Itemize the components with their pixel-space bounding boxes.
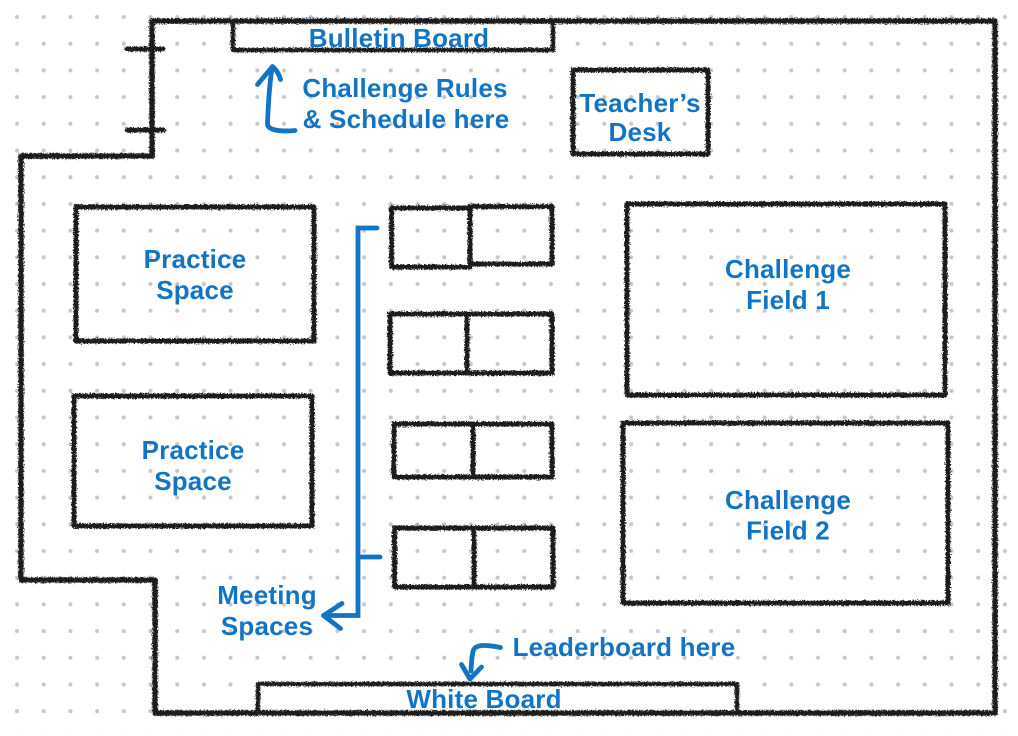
svg-text:Desk: Desk	[609, 117, 672, 147]
svg-text:White Board: White Board	[406, 684, 561, 714]
svg-text:Field 1: Field 1	[746, 285, 830, 315]
svg-text:& Schedule here: & Schedule here	[303, 104, 510, 134]
svg-text:Practice: Practice	[142, 435, 245, 465]
svg-text:Space: Space	[154, 466, 232, 496]
svg-text:Field 2: Field 2	[746, 516, 830, 546]
svg-text:Teacher’s: Teacher’s	[579, 88, 700, 118]
svg-text:Spaces: Spaces	[221, 611, 313, 641]
svg-text:Practice: Practice	[144, 244, 247, 274]
svg-text:Challenge Rules: Challenge Rules	[302, 73, 507, 103]
svg-text:Challenge: Challenge	[725, 485, 851, 515]
svg-text:Challenge: Challenge	[725, 254, 851, 284]
svg-text:Space: Space	[156, 275, 234, 305]
svg-text:Leaderboard here: Leaderboard here	[513, 632, 736, 662]
svg-text:Meeting: Meeting	[217, 580, 317, 610]
svg-text:Bulletin Board: Bulletin Board	[309, 23, 489, 53]
